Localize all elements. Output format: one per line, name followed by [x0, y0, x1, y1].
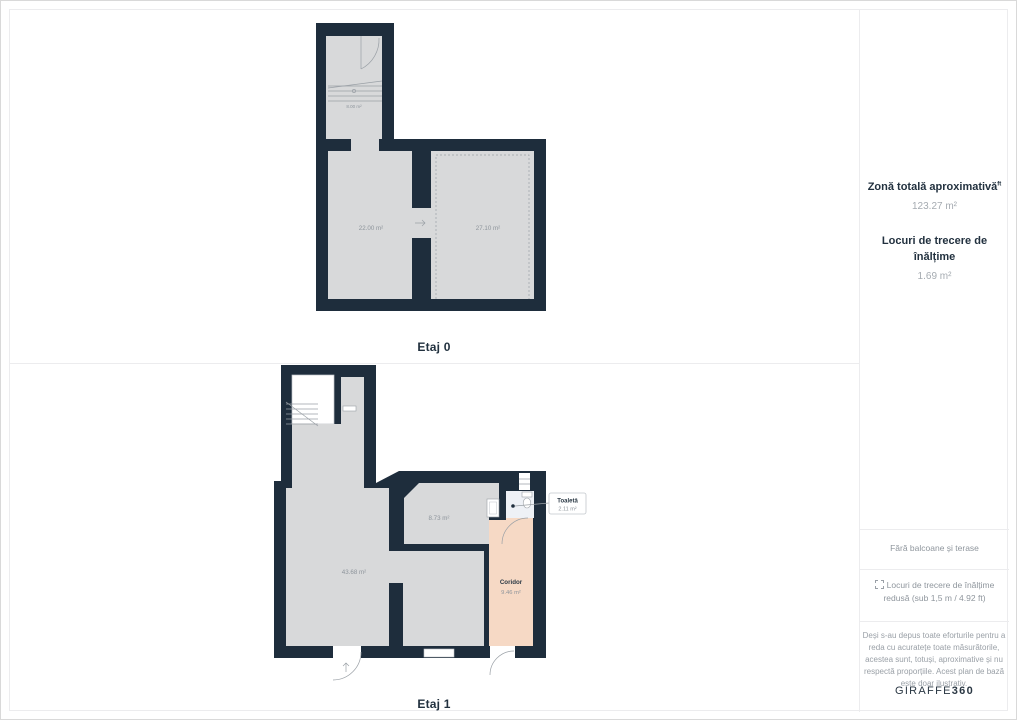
mid-room-area-label: 8.73 m² [429, 515, 450, 522]
reduced-headroom-hatch-icon [875, 580, 884, 589]
sidebar-rule-3 [860, 621, 1009, 622]
headroom-heading: Locuri de trecere de înălțime [876, 234, 994, 266]
etaj1-alcove-door [343, 406, 356, 411]
disclaimer-text: Deși s-au depus toate eforturile pentru … [861, 630, 1007, 690]
total-area-heading: Zonă totală aproximativăft [860, 180, 1009, 196]
etaj1-title: Etaj 1 [9, 697, 859, 711]
corridor-name-label: Coridor [500, 579, 523, 586]
entrance-arrow [343, 663, 349, 672]
total-area-value: 123.27 m² [860, 201, 1009, 212]
brand-prefix: GIRAFFE [895, 685, 952, 697]
reduced-headroom-line1: Locuri de trecere de înălțime [887, 580, 995, 590]
floorplan-etaj1: Toaletă 2.11 m² 43.68 m² 8.73 m² Coridor… [274, 363, 586, 693]
living-area-label: 43.68 m² [342, 569, 366, 576]
headroom-block: Locuri de trecere de înălțime 1.69 m² [860, 234, 1009, 282]
toilet-area-label: 2.11 m² [558, 507, 576, 513]
sidebar-rule-1 [860, 529, 1009, 530]
etaj0-room-left-label: 22.00 m² [359, 225, 383, 232]
corridor-area-label: 9.46 m² [501, 590, 521, 596]
sidebar-divider [859, 9, 860, 712]
total-area-block: Zonă totală aproximativăft 123.27 m² [860, 180, 1009, 212]
giraffe360-logo: GIRAFFE360 [860, 685, 1009, 697]
no-balconies-note: Fără balcoane și terase [860, 542, 1009, 555]
etaj0-stairs-area-label: 8.00 m² [346, 104, 362, 109]
headroom-value: 1.69 m² [860, 271, 1009, 282]
etaj0-room-right-label: 27.10 m² [476, 225, 500, 232]
floorplan-page: 8.00 m² 22.00 m² 27.10 m² Etaj 0 [0, 0, 1017, 720]
total-area-footnote: ft [997, 181, 1001, 187]
brand-suffix: 360 [952, 685, 974, 697]
floorplan-etaj0: 8.00 m² 22.00 m² 27.10 m² [316, 21, 546, 313]
toilet-name-label: Toaletă [557, 499, 578, 505]
reduced-headroom-line2: redusă (sub 1,5 m / 4.92 ft) [883, 593, 985, 603]
sidebar-rule-2 [860, 569, 1009, 570]
etaj0-title: Etaj 0 [9, 340, 859, 354]
reduced-headroom-note: Locuri de trecere de înălțime redusă (su… [860, 579, 1009, 605]
